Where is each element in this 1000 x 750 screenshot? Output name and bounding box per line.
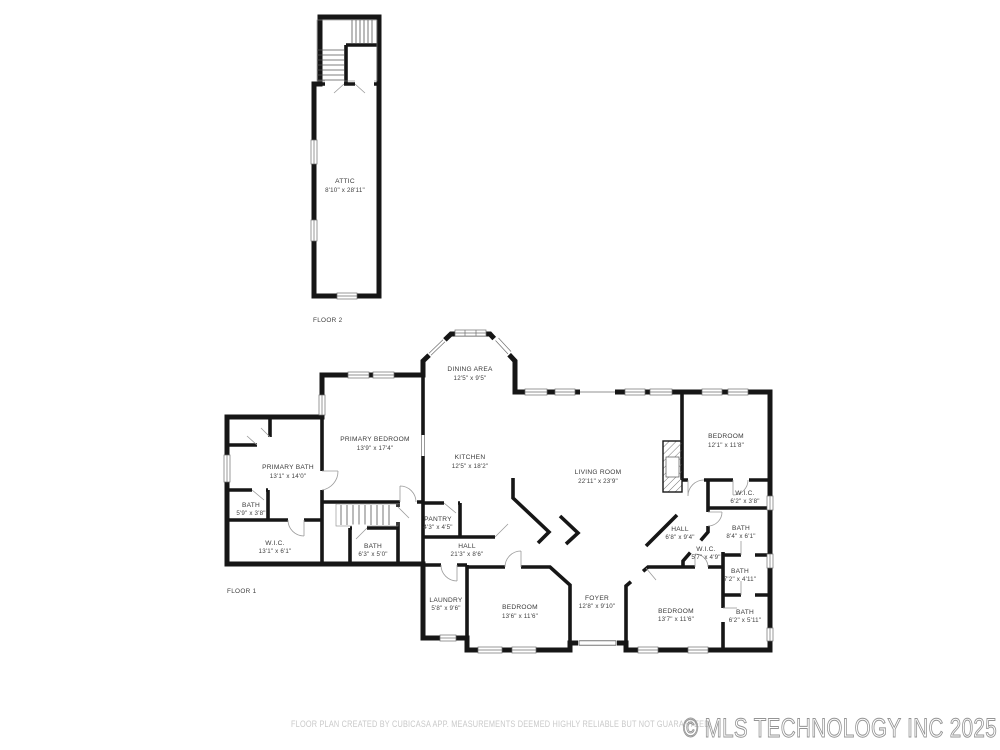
room-dims-attic: 8'10" x 28'11" xyxy=(325,187,365,194)
room-label-hall-main: HALL xyxy=(458,543,476,550)
attic-interior-walls xyxy=(314,45,379,84)
room-label-living-room: LIVING ROOM xyxy=(575,469,622,476)
room-label-bath-right-2: BATH xyxy=(731,568,749,575)
room-dims-bath-small: 5'9" x 3'8" xyxy=(236,510,265,517)
room-label-hall-right: HALL xyxy=(671,526,689,533)
floor2-label: FLOOR 2 xyxy=(313,317,343,324)
room-dims-bedroom-4: 12'1" x 11'8" xyxy=(708,442,744,449)
room-dims-primary-bath: 13'1" x 14'0" xyxy=(270,473,307,480)
room-label-pantry: PANTRY xyxy=(424,516,452,523)
room-label-bedroom-4: BEDROOM xyxy=(708,433,744,440)
front-entry-door xyxy=(579,641,616,645)
room-dims-bath-right-1: 8'4" x 6'1" xyxy=(726,533,755,540)
room-dims-hall-main: 21'3" x 8'6" xyxy=(451,551,484,558)
floor-plan-page: ATTIC 8'10" x 28'11" FLOOR 2 xyxy=(0,0,1000,750)
attic-windows xyxy=(311,140,357,299)
floor-plan-image: ATTIC 8'10" x 28'11" FLOOR 2 xyxy=(0,0,1000,750)
copyright-watermark: © MLS TECHNOLOGY INC 2025 xyxy=(683,713,997,743)
room-dims-wic-primary: 13'1" x 6'1" xyxy=(259,548,292,555)
floor1-kitchen-walls xyxy=(423,375,578,564)
room-dims-living-room: 22'11" x 23'9" xyxy=(578,478,618,485)
room-dims-primary-bedroom: 13'9" x 17'4" xyxy=(357,445,394,452)
room-label-bath-right-3: BATH xyxy=(736,609,754,616)
fireplace xyxy=(663,441,682,492)
disclaimer-text: FLOOR PLAN CREATED BY CUBICASA APP. MEAS… xyxy=(291,719,712,729)
main-staircase xyxy=(336,504,398,526)
room-label-bath-stairs: BATH xyxy=(364,543,382,550)
room-dims-hall-right: 6'8" x 9'4" xyxy=(665,534,694,541)
room-label-primary-bedroom: PRIMARY BEDROOM xyxy=(340,436,409,443)
room-dims-bath-right-3: 6'2" x 5'11" xyxy=(729,617,761,624)
room-label-dining-area: DINING AREA xyxy=(447,366,493,373)
room-label-wic-right: W.I.C. xyxy=(735,490,754,497)
room-label-bath-small: BATH xyxy=(242,502,260,509)
room-label-kitchen: KITCHEN xyxy=(455,454,486,461)
room-dims-foyer: 12'8" x 9'10" xyxy=(579,603,616,610)
room-label-wic-primary: W.I.C. xyxy=(265,540,284,547)
room-label-bath-right-1: BATH xyxy=(732,525,750,532)
room-label-attic: ATTIC xyxy=(335,178,355,185)
room-dims-kitchen: 12'5" x 18'2" xyxy=(452,463,489,470)
room-dims-wic-right: 6'2" x 3'8" xyxy=(730,498,759,505)
room-label-laundry: LAUNDRY xyxy=(429,597,462,604)
room-dims-pantry: 4'3" x 4'5" xyxy=(423,524,452,531)
room-label-bedroom-3: BEDROOM xyxy=(658,608,694,615)
room-label-bedroom-2: BEDROOM xyxy=(502,604,538,611)
room-label-primary-bath: PRIMARY BATH xyxy=(262,464,314,471)
floor2-plan: ATTIC 8'10" x 28'11" FLOOR 2 xyxy=(311,17,379,324)
room-dims-laundry: 5'8" x 9'6" xyxy=(431,605,460,612)
room-dims-bedroom-2: 13'6" x 11'6" xyxy=(502,613,538,620)
room-dims-wic-small: 5'7" x 4'9" xyxy=(691,554,720,561)
floor1-label: FLOOR 1 xyxy=(227,588,257,595)
windows xyxy=(224,330,773,653)
floor1-plan: PRIMARY BEDROOM 13'9" x 17'4" PRIMARY BA… xyxy=(224,330,773,653)
room-label-foyer: FOYER xyxy=(585,595,609,602)
room-dims-bedroom-3: 13'7" x 11'6" xyxy=(658,616,694,623)
room-label-wic-small: W.I.C. xyxy=(696,546,715,553)
door-openings xyxy=(252,471,755,622)
room-dims-bath-right-2: 7'2" x 4'11" xyxy=(724,576,756,583)
room-dims-bath-stairs: 6'3" x 5'0" xyxy=(358,551,387,558)
floor1-bottom-walls xyxy=(423,552,723,650)
room-dims-dining-area: 12'5" x 9'5" xyxy=(454,375,487,382)
